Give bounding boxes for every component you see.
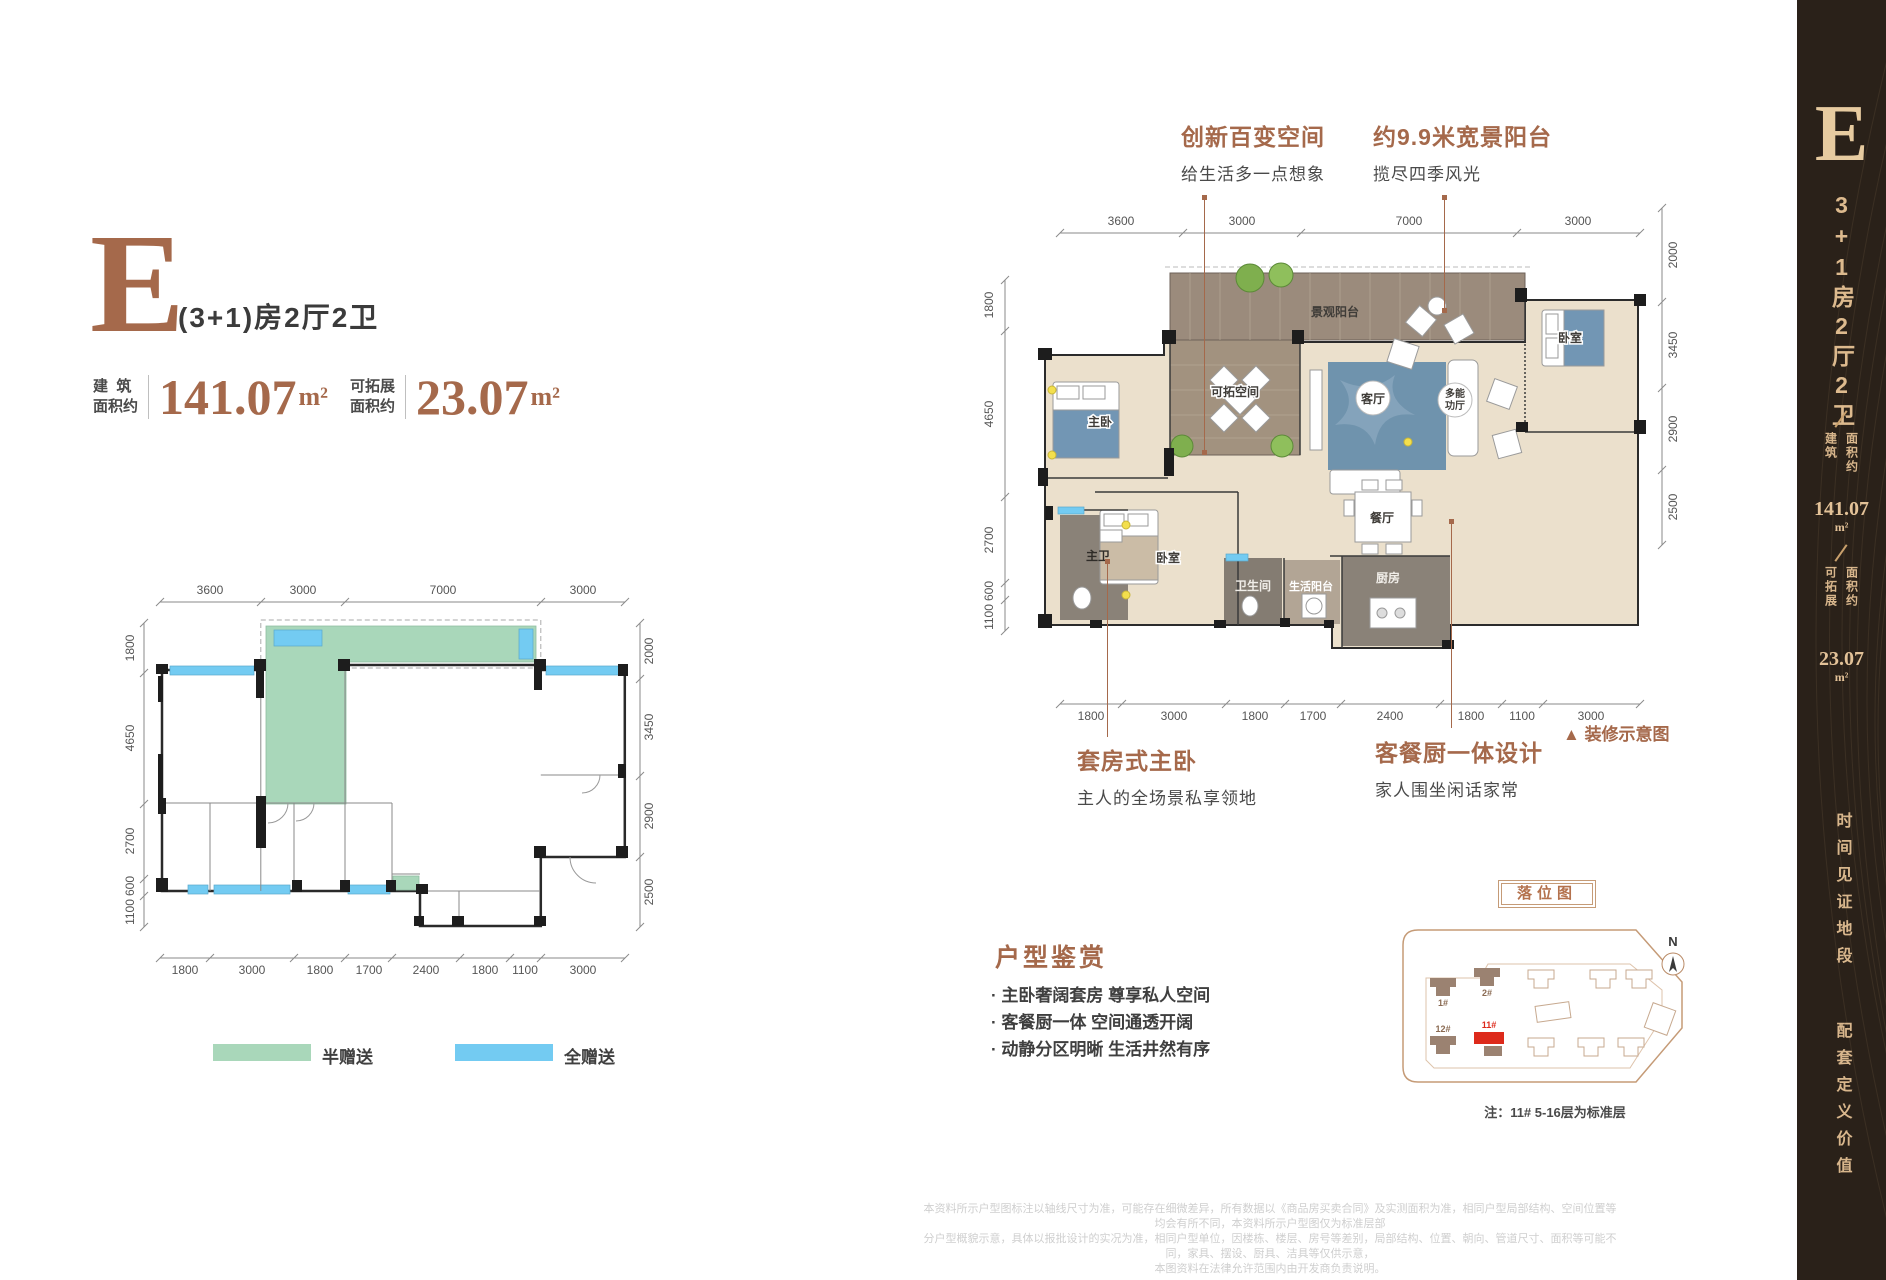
svg-text:2000: 2000: [1666, 241, 1680, 268]
room-label-multi-1: 多能: [1445, 387, 1465, 400]
svg-text:3000: 3000: [239, 963, 266, 977]
svg-text:2500: 2500: [1666, 493, 1680, 520]
built-area-unit: m²: [299, 382, 328, 412]
room-label-living: 客厅: [1360, 391, 1385, 406]
sidebar-slogan-2: 配套定义价值: [1797, 1022, 1886, 1184]
svg-text:1100: 1100: [512, 963, 538, 977]
bullet: · 客餐厨一体 空间通透开阔: [991, 1009, 1210, 1036]
deco-note-text: 装修示意图: [1585, 725, 1670, 744]
svg-text:1100: 1100: [982, 604, 996, 630]
room-label-bedroom-right: 卧室: [1558, 330, 1582, 345]
building-11-highlight: [1474, 1032, 1504, 1044]
slogan-text: 时间见证地段: [1830, 812, 1854, 974]
room-label-service-balcony: 生活阳台: [1289, 579, 1333, 593]
callout-sub: 揽尽四季风光: [1373, 160, 1552, 185]
svg-text:3000: 3000: [1161, 709, 1188, 723]
callout-sub: 主人的全场景私享领地: [1077, 784, 1257, 809]
sidebar-area1-label: 建筑 面积约: [1797, 432, 1886, 474]
svg-text:2700: 2700: [982, 526, 996, 553]
svg-text:7000: 7000: [430, 583, 457, 597]
svg-text:600: 600: [123, 876, 137, 896]
svg-text:1100: 1100: [1509, 709, 1535, 723]
label-col: 面积约: [1844, 566, 1861, 608]
legend-swatch-half: [213, 1044, 313, 1062]
svg-text:11#: 11#: [1482, 1020, 1497, 1030]
sidebar-area1-value: 141.07: [1797, 498, 1886, 521]
disclaimer-line: 分户型概貌示意，具体以报批设计的实况为准，相同户型单位，因楼栋、楼层、房号等差别…: [920, 1232, 1620, 1262]
sidebar-slogan-1: 时间见证地段: [1797, 812, 1886, 974]
label-col: 建筑: [1823, 432, 1840, 474]
svg-text:1700: 1700: [356, 963, 383, 977]
area-summary: 建 筑 面积约 141.07 m² 可拓展 面积约 23.07 m²: [93, 372, 560, 422]
appreciation-bullets: · 主卧奢阔套房 尊享私人空间 · 客餐厨一体 空间通透开阔 · 动静分区明晰 …: [991, 982, 1210, 1063]
callout-title: 客餐厨一体设计: [1375, 734, 1543, 768]
bullet: · 动静分区明晰 生活井然有序: [991, 1036, 1210, 1063]
svg-text:4650: 4650: [982, 400, 996, 427]
unit-type-desc: (3+1)房2厅2卫: [178, 296, 379, 336]
expand-area-value: 23.07: [416, 372, 529, 422]
callout-master-suite: 套房式主卧 主人的全场景私享领地: [1077, 742, 1257, 809]
svg-text:7000: 7000: [1396, 214, 1423, 228]
room-label-balcony: 景观阳台: [1311, 304, 1359, 319]
disclaimer-line: 本图资料在法律允许范围内由开发商负责说明。: [920, 1262, 1620, 1277]
svg-text:4650: 4650: [123, 724, 137, 751]
svg-text:2#: 2#: [1482, 988, 1492, 998]
room-label-master: 主卧: [1088, 414, 1112, 429]
siteplan-title-box: 落位图: [1498, 880, 1596, 908]
svg-text:2000: 2000: [642, 637, 656, 664]
svg-text:1800: 1800: [472, 963, 499, 977]
svg-text:2900: 2900: [1666, 415, 1680, 442]
deco-note: ▲ 装修示意图: [1563, 720, 1670, 745]
svg-text:3000: 3000: [290, 583, 317, 597]
legend-label-full: 全赠送: [564, 1043, 615, 1068]
room-label-multi-2: 功厅: [1445, 399, 1465, 412]
label-col: 面积约: [1844, 432, 1861, 474]
sidebar-area2-unit: m²: [1797, 670, 1886, 685]
half-gift-area-small: [393, 876, 419, 890]
room-label-kitchen: 厨房: [1376, 570, 1400, 585]
svg-text:1800: 1800: [123, 634, 137, 661]
sidebar-area1-unit: m²: [1797, 520, 1886, 535]
furnished-floorplan: 3600 3000 7000 3000 1800 4650 2700 600 1…: [950, 170, 1695, 730]
callout-title: 创新百变空间: [1181, 118, 1325, 152]
callout-lkd-design: 客餐厨一体设计 家人围坐闲话家常: [1375, 734, 1543, 801]
leader-line: [1451, 522, 1452, 728]
callout-sub: 家人围坐闲话家常: [1375, 776, 1543, 801]
svg-text:2900: 2900: [642, 802, 656, 829]
leader-line: [1107, 562, 1108, 737]
legend-swatch-full: [455, 1044, 555, 1062]
svg-text:1100: 1100: [123, 899, 137, 925]
svg-text:3600: 3600: [1108, 214, 1135, 228]
sidebar: E 3+1房2厅2卫 建筑 面积约 141.07 m² 可拓展 面积约 23.0…: [1797, 0, 1886, 1280]
unit-type-letter: E: [90, 212, 185, 354]
svg-text:1800: 1800: [982, 291, 996, 318]
slogan-text: 配套定义价值: [1830, 1022, 1854, 1184]
svg-text:3600: 3600: [197, 583, 224, 597]
leader-dot: [1442, 195, 1447, 200]
leader-dot: [1449, 519, 1454, 524]
svg-text:600: 600: [982, 581, 996, 601]
page: E (3+1)房2厅2卫 建 筑 面积约 141.07 m² 可拓展 面积约 2…: [0, 0, 1886, 1280]
leader-dot: [1105, 559, 1110, 564]
svg-text:1800: 1800: [1242, 709, 1269, 723]
expand-area-unit: m²: [530, 382, 559, 412]
room-label-bath: 卫生间: [1235, 578, 1271, 593]
label-col: 可拓展: [1823, 566, 1840, 608]
svg-text:3000: 3000: [1565, 214, 1592, 228]
divider: [148, 375, 149, 419]
svg-text:2700: 2700: [123, 827, 137, 854]
svg-text:3450: 3450: [1666, 331, 1680, 358]
room-label-flex: 可拓空间: [1211, 384, 1259, 399]
svg-text:2500: 2500: [642, 878, 656, 905]
leader-dot: [1202, 195, 1207, 200]
disclaimer: 本资料所示户型图标注以轴线尺寸为准，可能存在细微差异，所有数据以《商品房买卖合同…: [920, 1202, 1620, 1277]
svg-text:3000: 3000: [1229, 214, 1256, 228]
svg-text:1800: 1800: [1458, 709, 1485, 723]
sidebar-type-vertical: 3+1房2厅2卫: [1797, 192, 1886, 431]
leader-dot: [1442, 308, 1447, 313]
svg-text:3000: 3000: [570, 963, 597, 977]
svg-text:12#: 12#: [1435, 1024, 1450, 1034]
svg-text:3000: 3000: [570, 583, 597, 597]
siteplan: 1# 2# 12# 11# N: [1390, 920, 1700, 1100]
triangle-icon: ▲: [1563, 725, 1580, 744]
sidebar-area2-label: 可拓展 面积约: [1797, 566, 1886, 608]
svg-text:1#: 1#: [1438, 998, 1448, 1008]
bullet: · 主卧奢阔套房 尊享私人空间: [991, 982, 1210, 1009]
callout-sub: 给生活多一点想象: [1181, 160, 1325, 185]
disclaimer-line: 本资料所示户型图标注以轴线尺寸为准，可能存在细微差异，所有数据以《商品房买卖合同…: [920, 1202, 1620, 1232]
svg-text:1700: 1700: [1300, 709, 1327, 723]
callout-balcony: 约9.9米宽景阳台 揽尽四季风光: [1373, 118, 1552, 185]
technical-floorplan: 3600 3000 7000 3000 1800 4650 2700 600 1…: [100, 558, 670, 1038]
svg-text:1800: 1800: [307, 963, 334, 977]
built-area-label: 建 筑 面积约: [93, 377, 138, 417]
legend-label-half: 半赠送: [322, 1043, 373, 1068]
expand-area-label: 可拓展 面积约: [350, 377, 395, 417]
divider: [405, 375, 406, 419]
callout-title: 约9.9米宽景阳台: [1373, 118, 1552, 152]
svg-text:2400: 2400: [1377, 709, 1404, 723]
compass-north-label: N: [1668, 934, 1677, 949]
svg-text:2400: 2400: [413, 963, 440, 977]
built-area-value: 141.07: [159, 372, 297, 422]
svg-text:1800: 1800: [172, 963, 199, 977]
leader-line: [1444, 198, 1445, 310]
svg-text:1800: 1800: [1078, 709, 1105, 723]
room-label-bedroom2: 卧室: [1156, 550, 1180, 565]
sidebar-type-text: 3+1房2厅2卫: [1825, 192, 1859, 431]
callout-flex-space: 创新百变空间 给生活多一点想象: [1181, 118, 1325, 185]
sidebar-area2-value: 23.07: [1797, 648, 1886, 671]
appreciation-title: 户型鉴赏: [995, 938, 1107, 974]
sidebar-type-letter: E: [1797, 94, 1886, 174]
callout-title: 套房式主卧: [1077, 742, 1257, 776]
siteplan-note: 注：11# 5-16层为标准层: [1455, 1102, 1655, 1121]
leader-dot: [1202, 450, 1207, 455]
leader-line: [1204, 198, 1205, 452]
svg-text:3450: 3450: [642, 713, 656, 740]
room-label-dining: 餐厅: [1370, 510, 1394, 525]
